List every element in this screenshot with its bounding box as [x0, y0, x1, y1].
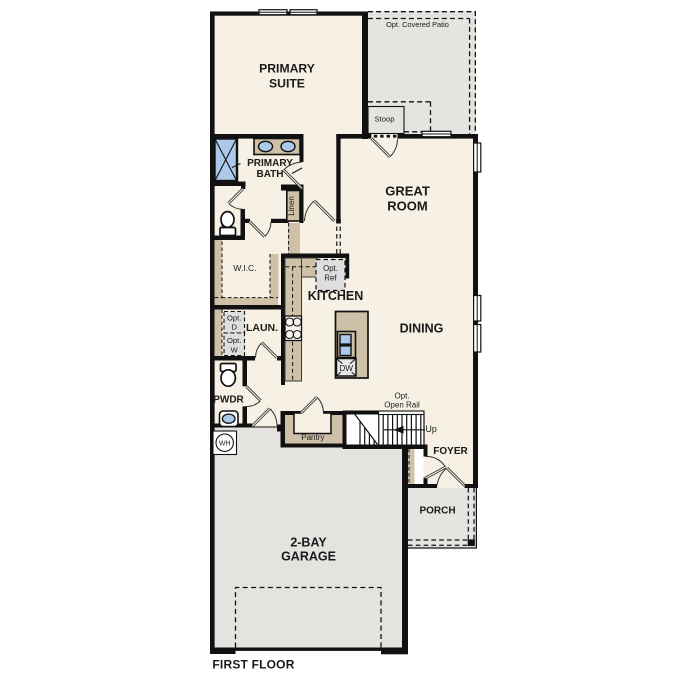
svg-text:DINING: DINING [400, 322, 444, 336]
svg-text:Stoop: Stoop [374, 115, 394, 124]
svg-text:Ref: Ref [324, 274, 337, 283]
svg-text:PORCH: PORCH [419, 506, 455, 517]
svg-text:KITCHEN: KITCHEN [308, 289, 364, 303]
svg-text:Pantry: Pantry [301, 433, 324, 442]
svg-text:W: W [231, 345, 239, 354]
svg-text:W.I.C.: W.I.C. [233, 263, 256, 273]
svg-text:Up: Up [426, 424, 437, 434]
svg-text:WH: WH [219, 441, 231, 448]
svg-text:Linen: Linen [287, 196, 296, 216]
svg-text:PWDR: PWDR [213, 395, 244, 406]
svg-text:Opt. Covered Patio: Opt. Covered Patio [386, 20, 449, 29]
svg-text:Opt.: Opt. [323, 264, 338, 273]
svg-text:FOYER: FOYER [433, 446, 468, 457]
svg-text:Opt.: Opt. [227, 314, 241, 323]
svg-text:GARAGE: GARAGE [281, 550, 336, 564]
svg-text:GREAT: GREAT [385, 184, 430, 199]
svg-text:PRIMARY: PRIMARY [259, 62, 315, 76]
svg-text:ROOM: ROOM [387, 199, 427, 214]
svg-text:Opt.: Opt. [394, 392, 409, 401]
svg-text:D: D [231, 323, 237, 332]
svg-text:FIRST FLOOR: FIRST FLOOR [212, 658, 294, 672]
svg-text:Open Rail: Open Rail [384, 401, 420, 410]
svg-text:LAUN.: LAUN. [246, 322, 278, 334]
svg-text:BATH: BATH [256, 169, 283, 180]
svg-text:DW: DW [339, 364, 353, 373]
svg-text:Opt.: Opt. [227, 336, 241, 345]
svg-text:SUITE: SUITE [269, 77, 305, 91]
svg-text:PRIMARY: PRIMARY [247, 158, 293, 169]
svg-text:2-BAY: 2-BAY [290, 536, 327, 550]
